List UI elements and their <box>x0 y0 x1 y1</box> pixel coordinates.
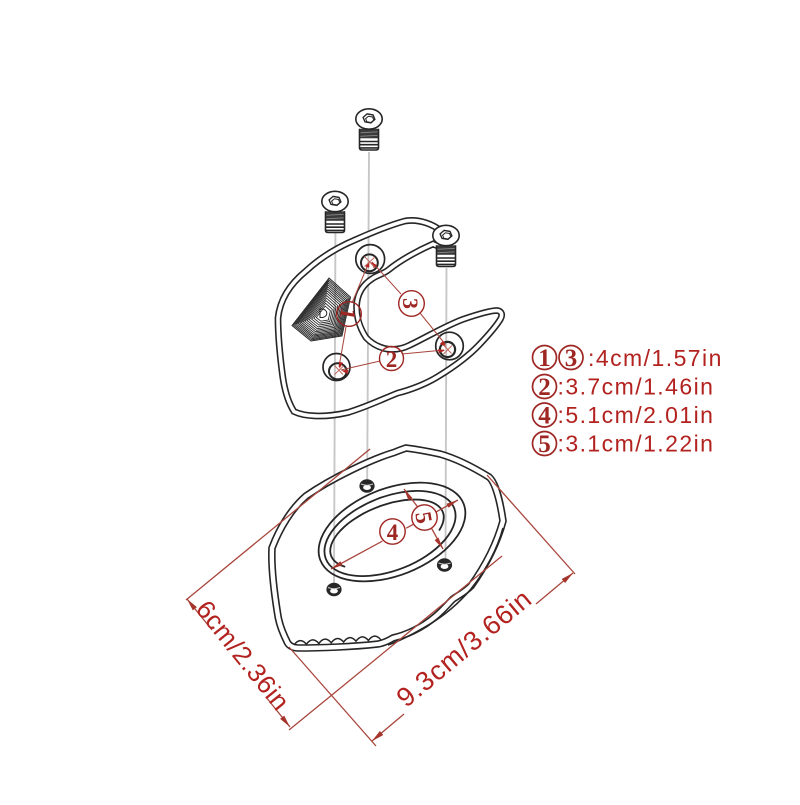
svg-text:3: 3 <box>398 298 423 309</box>
svg-text::5.1cm/2.01in: :5.1cm/2.01in <box>558 402 715 428</box>
svg-text:4: 4 <box>538 403 551 430</box>
svg-text:5: 5 <box>538 431 551 458</box>
svg-text:1: 1 <box>538 345 551 372</box>
svg-text:2: 2 <box>538 374 551 401</box>
svg-text:2: 2 <box>386 347 398 372</box>
svg-text:3: 3 <box>565 345 578 372</box>
svg-text::3.1cm/1.22in: :3.1cm/1.22in <box>558 431 715 457</box>
svg-text::3.7cm/1.46in: :3.7cm/1.46in <box>558 374 715 400</box>
svg-text:4: 4 <box>387 520 399 545</box>
svg-text::4cm/1.57in: :4cm/1.57in <box>588 345 723 371</box>
